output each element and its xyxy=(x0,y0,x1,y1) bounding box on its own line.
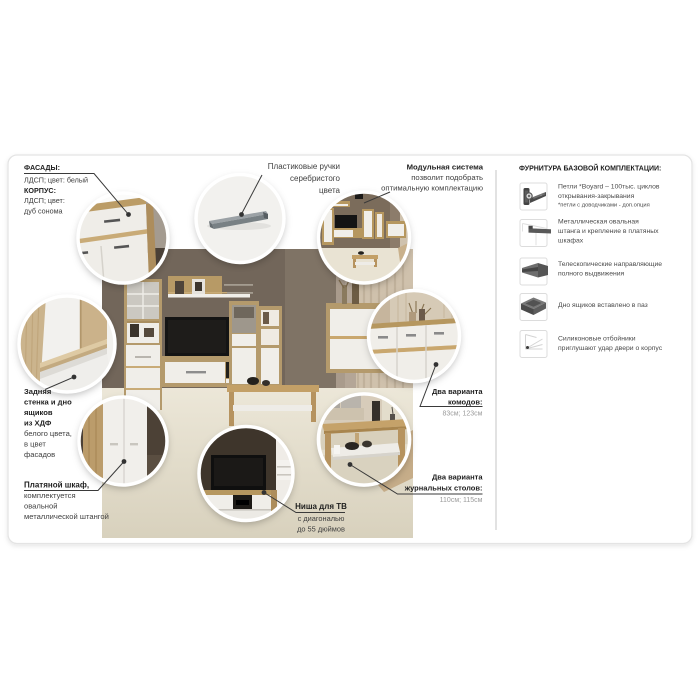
svg-text:полного выдвижения: полного выдвижения xyxy=(558,271,625,278)
svg-text:приглушают удар двери о корпус: приглушают удар двери о корпус xyxy=(558,345,663,352)
svg-text:оптимальную комплектацию: оптимальную комплектацию xyxy=(381,184,483,193)
svg-text:серебристого: серебристого xyxy=(290,174,341,183)
svg-text:штанга и крепление в платяных: штанга и крепление в платяных xyxy=(558,228,659,235)
svg-text:Дно ящиков вставлено в паз: Дно ящиков вставлено в паз xyxy=(558,302,648,309)
svg-text:КОРПУС:: КОРПУС: xyxy=(24,186,56,195)
svg-text:металлической штангой: металлической штангой xyxy=(24,512,109,521)
svg-text:Два варианта: Два варианта xyxy=(432,473,483,482)
svg-text:до 55 дюймов: до 55 дюймов xyxy=(297,525,345,534)
svg-text:фасадов: фасадов xyxy=(24,450,55,459)
svg-text:шкафах: шкафах xyxy=(558,238,584,245)
svg-text:83см; 123см: 83см; 123см xyxy=(443,411,483,418)
svg-text:ящиков: ящиков xyxy=(24,408,53,417)
svg-text:стенка и дно: стенка и дно xyxy=(24,398,72,407)
svg-text:Петли *Boyard – 100тыс. циклов: Петли *Boyard – 100тыс. циклов xyxy=(558,184,660,191)
svg-text:с диагональю: с диагональю xyxy=(298,514,345,523)
svg-text:ФУРНИТУРА БАЗОВОЙ КОМПЛЕКТАЦИИ: ФУРНИТУРА БАЗОВОЙ КОМПЛЕКТАЦИИ: xyxy=(519,164,661,173)
svg-text:Пластиковые ручки: Пластиковые ручки xyxy=(268,162,340,171)
svg-text:белого цвета,: белого цвета, xyxy=(24,429,72,438)
svg-text:Силиконовые отбойники: Силиконовые отбойники xyxy=(558,335,636,343)
svg-text:Два варианта: Два варианта xyxy=(432,387,483,396)
svg-text:дуб сонома: дуб сонома xyxy=(24,206,63,215)
svg-text:в цвет: в цвет xyxy=(24,440,46,449)
svg-text:из ХДФ: из ХДФ xyxy=(24,419,52,428)
svg-text:овальной: овальной xyxy=(24,502,57,511)
svg-text:Ниша для ТВ: Ниша для ТВ xyxy=(295,502,347,511)
svg-text:Платяной шкаф,: Платяной шкаф, xyxy=(24,481,89,490)
svg-text:*петли с доводчиками - доп.опц: *петли с доводчиками - доп.опция xyxy=(558,203,650,209)
svg-text:ЛДСП; цвет:: ЛДСП; цвет: xyxy=(24,196,65,205)
svg-text:ФАСАДЫ:: ФАСАДЫ: xyxy=(24,163,60,172)
svg-text:комплектуется: комплектуется xyxy=(24,491,76,500)
svg-text:ЛДСП; цвет: белый: ЛДСП; цвет: белый xyxy=(24,176,88,185)
svg-text:цвета: цвета xyxy=(319,186,341,195)
svg-text:Телескопические направляющие: Телескопические направляющие xyxy=(558,261,662,268)
svg-text:Модульная система: Модульная система xyxy=(407,163,484,172)
svg-text:комодов:: комодов: xyxy=(448,398,483,407)
svg-text:позволит подобрать: позволит подобрать xyxy=(411,173,483,182)
svg-text:открывания-закрывания: открывания-закрывания xyxy=(558,193,635,200)
svg-text:журнальных столов:: журнальных столов: xyxy=(404,484,483,493)
svg-text:Металлическая овальная: Металлическая овальная xyxy=(558,219,639,226)
svg-text:110см; 115см: 110см; 115см xyxy=(440,497,483,504)
